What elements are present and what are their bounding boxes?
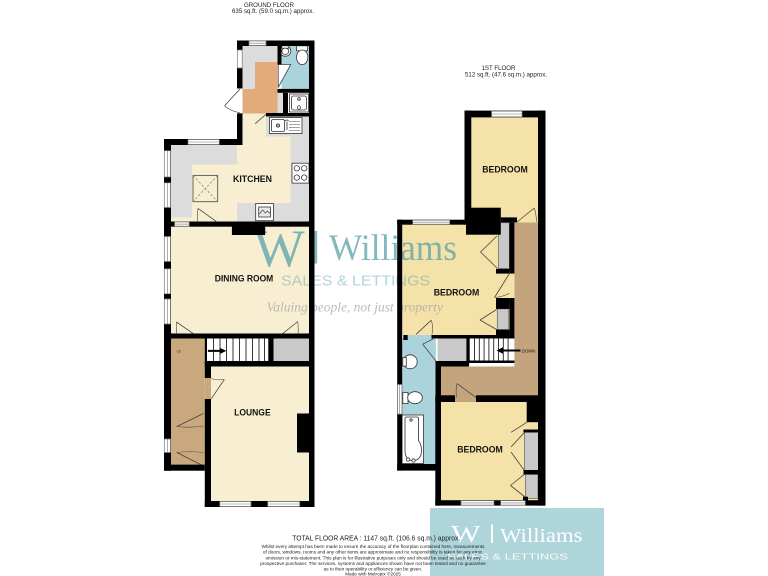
svg-text:DOWN: DOWN — [522, 348, 535, 353]
svg-text:up: up — [177, 349, 182, 354]
svg-text:Williams: Williams — [500, 525, 583, 547]
svg-text:LOUNGE: LOUNGE — [234, 408, 271, 418]
svg-text:KITCHEN: KITCHEN — [233, 174, 272, 184]
svg-text:TOTAL FLOOR AREA : 1147 sq.ft.: TOTAL FLOOR AREA : 1147 sq.ft. (106.6 sq… — [292, 534, 460, 542]
svg-text:Whilst every attempt has been: Whilst every attempt has been made to en… — [261, 544, 485, 549]
svg-text:prospective purchaser. The ser: prospective purchaser. The services, sys… — [260, 561, 486, 566]
svg-text:SALES & LETTINGS: SALES & LETTINGS — [281, 273, 430, 290]
svg-text:omission or mis-statement. Thi: omission or mis-statement. This plan is … — [265, 555, 481, 560]
svg-text:Valuing people, not just prope: Valuing people, not just property — [267, 301, 444, 316]
svg-text:BEDROOM: BEDROOM — [482, 165, 528, 175]
svg-text:Williams: Williams — [329, 228, 457, 269]
svg-text:635 sq.ft. (59.0 sq.m.) approx: 635 sq.ft. (59.0 sq.m.) approx. — [232, 8, 314, 15]
svg-text:512 sq.ft. (47.6 sq.m.) approx: 512 sq.ft. (47.6 sq.m.) approx. — [465, 71, 547, 78]
svg-text:BEDROOM: BEDROOM — [457, 445, 503, 455]
svg-text:of doors, windows, rooms and a: of doors, windows, rooms and any other i… — [263, 550, 483, 555]
svg-text:Made with Metropix ©2025: Made with Metropix ©2025 — [345, 571, 401, 576]
svg-text:BEDROOM: BEDROOM — [434, 287, 480, 297]
